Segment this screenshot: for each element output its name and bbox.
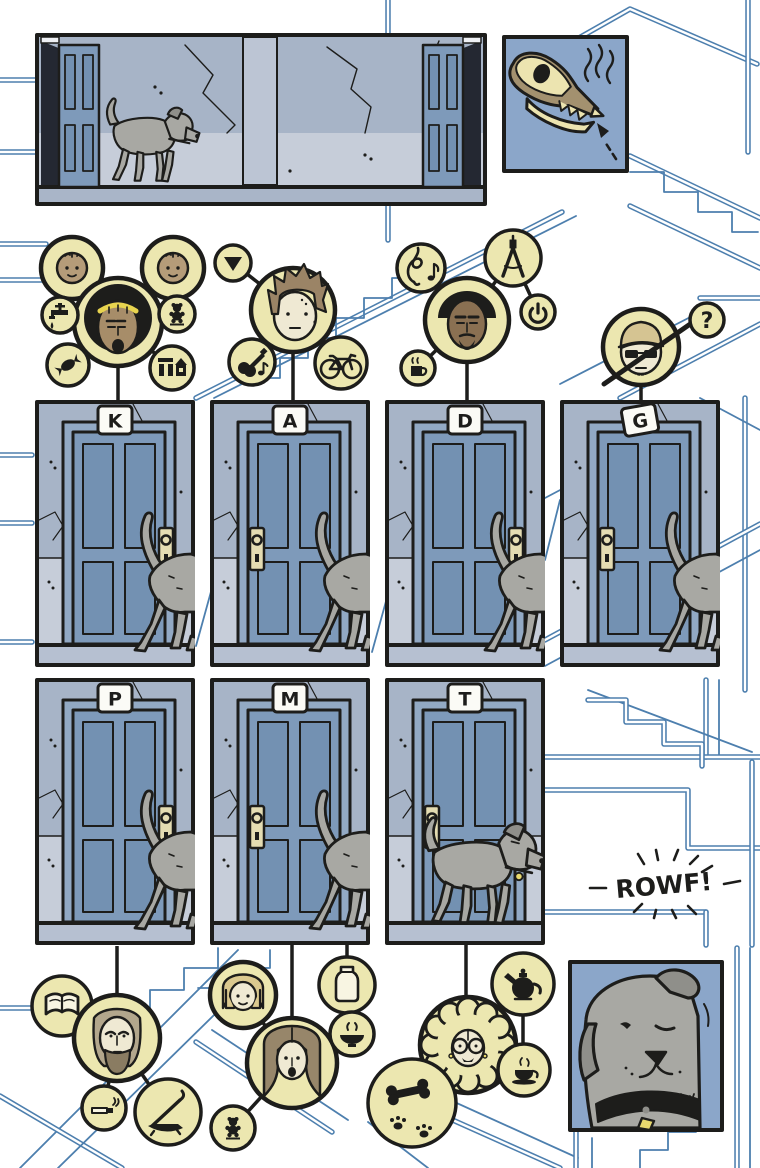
door-panel-G: G: [560, 400, 720, 667]
door-panel-P: P: [35, 678, 195, 945]
svg-text:P: P: [108, 689, 122, 711]
cluster-apartment-g: ?: [592, 290, 737, 408]
teacup-icon: [498, 1044, 550, 1096]
teapot-icon: [492, 953, 554, 1015]
question-mark-icon: ?: [690, 303, 724, 337]
door-panel-A: A: [210, 400, 370, 667]
bicycle-icon: [315, 337, 367, 389]
comic-page: ?: [0, 0, 760, 1168]
svg-text:K: K: [108, 411, 124, 433]
girl-face: [210, 962, 276, 1028]
rowf-sound-effect: ROWF!: [578, 848, 750, 924]
toddler-face-icon: [142, 237, 204, 299]
cluster-apartment-t: [362, 944, 567, 1168]
svg-text:A: A: [283, 411, 298, 433]
guitar-icon: [229, 339, 275, 385]
svg-text:ROWF!: ROWF!: [614, 867, 713, 904]
cluster-apartment-a: [210, 222, 385, 404]
older-man-face: [74, 995, 160, 1081]
bone-and-paws-icon: [368, 1059, 456, 1147]
svg-text:T: T: [459, 689, 472, 711]
coffee-mug-icon: [401, 351, 435, 385]
young-man-face: [251, 264, 335, 352]
power-button-icon: [521, 295, 555, 329]
collar-tag: [638, 1118, 654, 1130]
capped-man-face: [603, 309, 679, 385]
door-lock: [250, 528, 264, 570]
door-letter-label: K: [98, 406, 132, 434]
teddy-bear-icon: [159, 296, 195, 332]
door-letter-label: D: [448, 406, 482, 434]
door-panel-M: M: [210, 678, 370, 945]
door-letter-label: A: [273, 406, 307, 434]
woman-face: [247, 1018, 337, 1108]
cluster-apartment-k: [25, 215, 215, 405]
open-door-right: [423, 37, 481, 187]
cluster-apartment-d: [388, 222, 568, 404]
door-letter-label: P: [98, 684, 132, 712]
svg-text:M: M: [281, 689, 300, 711]
door-panel-K: K: [35, 400, 195, 667]
down-triangle-icon: [215, 245, 251, 281]
door-letter-label: T: [448, 684, 482, 712]
building-blocks-icon: [150, 346, 194, 390]
man-afro-face: [425, 278, 509, 362]
cigarette-icon: [82, 1086, 126, 1130]
cluster-apartment-p: [22, 946, 217, 1168]
svg-text:?: ?: [701, 309, 714, 334]
door-letter-label: M: [273, 684, 307, 712]
door-lock: [600, 528, 614, 570]
dog-closeup-panel: [568, 960, 724, 1132]
treble-clef-icon: [397, 244, 445, 292]
faucet-icon: [42, 297, 78, 333]
dog-smell-xray-panel: [502, 35, 629, 173]
door-panel-D: D: [385, 400, 545, 667]
hallway-panel: [35, 33, 487, 206]
open-door-left: [41, 37, 99, 187]
candy-icon: [47, 344, 89, 386]
door-lock: [250, 806, 264, 848]
svg-text:D: D: [457, 411, 473, 433]
compass-icon: [485, 230, 541, 286]
door-letter-label: G: [621, 403, 659, 436]
smoking-pipe-icon: [135, 1079, 201, 1145]
door-panel-T: T: [385, 678, 545, 945]
teddy-bear-icon: [211, 1106, 255, 1150]
